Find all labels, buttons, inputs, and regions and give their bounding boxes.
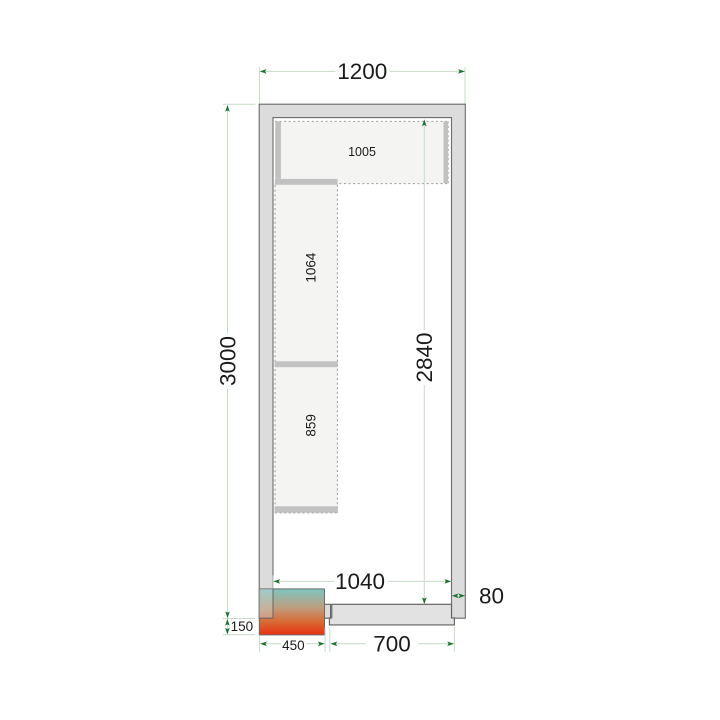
svg-text:1064: 1064 <box>303 252 318 283</box>
svg-text:80: 80 <box>479 583 504 608</box>
svg-text:1200: 1200 <box>337 59 387 84</box>
svg-text:450: 450 <box>282 638 305 653</box>
svg-text:2840: 2840 <box>412 332 437 382</box>
svg-text:150: 150 <box>231 619 254 634</box>
svg-text:3000: 3000 <box>215 336 240 386</box>
svg-text:700: 700 <box>373 632 411 657</box>
svg-text:859: 859 <box>304 414 319 437</box>
svg-text:1005: 1005 <box>348 145 376 159</box>
svg-text:1040: 1040 <box>335 569 385 594</box>
